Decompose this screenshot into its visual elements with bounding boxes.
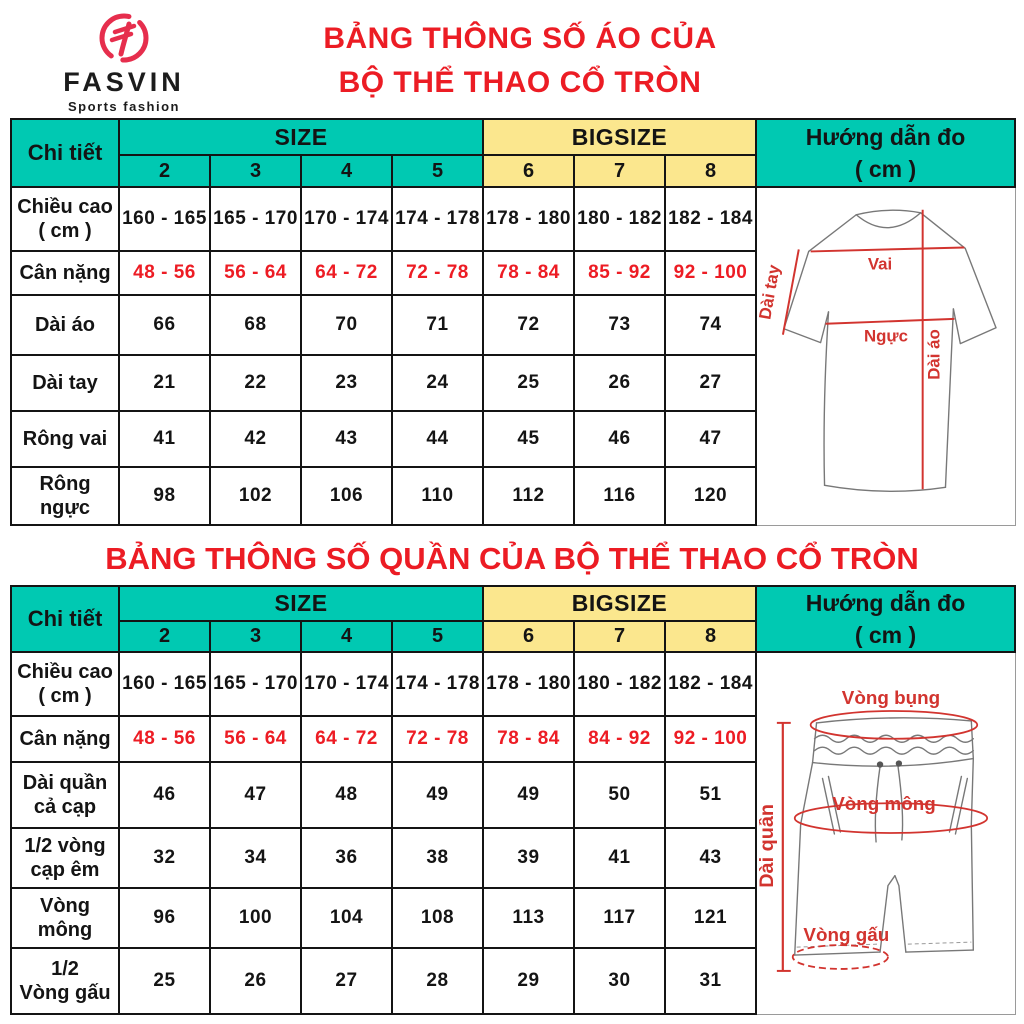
value-cell: 178 - 180 [483,187,574,251]
row-label: Dài tay [11,355,119,411]
table-row: Chiều cao ( cm ) 160 - 165 165 - 170 170… [11,187,1015,251]
value-cell: 113 [483,888,574,948]
value-cell: 92 - 100 [665,251,756,295]
value-cell: 116 [574,467,665,525]
shirt-size-table: Chi tiết SIZE BIGSIZE Hướng dẫn đo ( cm … [10,118,1016,526]
value-cell: 27 [665,355,756,411]
value-cell: 85 - 92 [574,251,665,295]
value-cell: 49 [392,762,483,828]
value-cell: 48 - 56 [119,251,210,295]
value-cell: 72 - 78 [392,251,483,295]
value-cell: 74 [665,295,756,355]
size-group-header: SIZE [119,119,483,155]
brand-logo-icon [96,10,152,66]
value-cell: 117 [574,888,665,948]
value-cell: 165 - 170 [210,652,301,716]
value-cell: 106 [301,467,392,525]
pants-size-table: Chi tiết SIZE BIGSIZE Hướng dẫn đo ( cm … [10,585,1016,1015]
value-cell: 160 - 165 [119,652,210,716]
value-cell: 49 [483,762,574,828]
shirt-measure-diagram: Vai Ngực Dài tay Dài áo [756,187,1015,525]
value-cell: 78 - 84 [483,716,574,762]
value-cell: 39 [483,828,574,888]
value-cell: 92 - 100 [665,716,756,762]
value-cell: 50 [574,762,665,828]
value-cell: 73 [574,295,665,355]
value-cell: 51 [665,762,756,828]
sleeve-length-label: Dài tay [759,263,784,321]
shirt-length-label: Dài áo [925,330,944,381]
value-cell: 32 [119,828,210,888]
bigsize-group-header: BIGSIZE [483,119,756,155]
value-cell: 44 [392,411,483,467]
value-cell: 48 [301,762,392,828]
value-cell: 43 [301,411,392,467]
row-label: Cân nặng [11,251,119,295]
brand-tagline: Sports fashion [46,99,202,114]
row-label: Rông ngực [11,467,119,525]
row-label: Chiều cao ( cm ) [11,187,119,251]
size-chart-page: FASVIN Sports fashion BẢNG THÔNG SỐ ÁO C… [0,0,1024,1024]
size-col-header: 2 [119,155,210,187]
value-cell: 46 [574,411,665,467]
value-cell: 104 [301,888,392,948]
value-cell: 180 - 182 [574,652,665,716]
bigsize-col-header: 8 [665,621,756,653]
hem-label: Vòng gấu [804,924,890,945]
value-cell: 100 [210,888,301,948]
value-cell: 70 [301,295,392,355]
value-cell: 66 [119,295,210,355]
value-cell: 45 [483,411,574,467]
row-label: 1/2 vòng cạp êm [11,828,119,888]
value-cell: 27 [301,948,392,1014]
value-cell: 108 [392,888,483,948]
value-cell: 43 [665,828,756,888]
row-label: Vòng mông [11,888,119,948]
value-cell: 170 - 174 [301,652,392,716]
bigsize-col-header: 6 [483,155,574,187]
detail-header: Chi tiết [11,586,119,652]
value-cell: 110 [392,467,483,525]
measure-guide-header: Hướng dẫn đo ( cm ) [756,119,1015,187]
value-cell: 24 [392,355,483,411]
value-cell: 174 - 178 [392,652,483,716]
value-cell: 165 - 170 [210,187,301,251]
value-cell: 84 - 92 [574,716,665,762]
value-cell: 112 [483,467,574,525]
value-cell: 28 [392,948,483,1014]
value-cell: 34 [210,828,301,888]
value-cell: 41 [574,828,665,888]
shoulder-label: Vai [868,255,892,274]
value-cell: 182 - 184 [665,652,756,716]
brand-logo: FASVIN Sports fashion [46,8,202,114]
value-cell: 29 [483,948,574,1014]
bigsize-col-header: 8 [665,155,756,187]
value-cell: 48 - 56 [119,716,210,762]
value-cell: 47 [665,411,756,467]
size-col-header: 3 [210,155,301,187]
row-label: 1/2 Vòng gấu [11,948,119,1014]
row-label: Cân nặng [11,716,119,762]
shorts-diagram-drawing: Vòng bụng Vòng mông Vòng gấu Dài quần [759,655,1012,1013]
hip-label: Vòng mông [832,793,936,814]
shirt-title-line2: BỘ THỂ THAO CỔ TRÒN [235,61,805,105]
row-label: Chiều cao ( cm ) [11,652,119,716]
value-cell: 41 [119,411,210,467]
pants-table-title: BẢNG THÔNG SỐ QUẦN CỦA BỘ THỂ THAO CỔ TR… [10,541,1014,577]
size-col-header: 5 [392,621,483,653]
value-cell: 38 [392,828,483,888]
value-cell: 23 [301,355,392,411]
value-cell: 64 - 72 [301,251,392,295]
shirt-title-line1: BẢNG THÔNG SỐ ÁO CỦA [235,17,805,61]
bigsize-col-header: 7 [574,155,665,187]
bigsize-group-header: BIGSIZE [483,586,756,621]
size-col-header: 2 [119,621,210,653]
value-cell: 178 - 180 [483,652,574,716]
waist-label: Vòng bụng [842,687,940,708]
value-cell: 64 - 72 [301,716,392,762]
value-cell: 25 [119,948,210,1014]
pants-length-label: Dài quần [759,804,778,888]
value-cell: 170 - 174 [301,187,392,251]
value-cell: 26 [574,355,665,411]
bigsize-col-header: 6 [483,621,574,653]
tshirt-diagram-drawing: Vai Ngực Dài tay Dài áo [759,188,1012,524]
value-cell: 36 [301,828,392,888]
value-cell: 46 [119,762,210,828]
value-cell: 182 - 184 [665,187,756,251]
measure-guide-header: Hướng dẫn đo ( cm ) [756,586,1015,652]
value-cell: 31 [665,948,756,1014]
value-cell: 42 [210,411,301,467]
bigsize-col-header: 7 [574,621,665,653]
size-col-header: 4 [301,155,392,187]
size-col-header: 4 [301,621,392,653]
brand-name: FASVIN [46,67,202,98]
value-cell: 30 [574,948,665,1014]
value-cell: 120 [665,467,756,525]
value-cell: 72 - 78 [392,716,483,762]
value-cell: 96 [119,888,210,948]
value-cell: 160 - 165 [119,187,210,251]
value-cell: 98 [119,467,210,525]
value-cell: 78 - 84 [483,251,574,295]
value-cell: 22 [210,355,301,411]
value-cell: 56 - 64 [210,251,301,295]
value-cell: 71 [392,295,483,355]
row-label: Dài quần cả cạp [11,762,119,828]
value-cell: 47 [210,762,301,828]
row-label: Dài áo [11,295,119,355]
value-cell: 68 [210,295,301,355]
value-cell: 72 [483,295,574,355]
value-cell: 102 [210,467,301,525]
size-group-header: SIZE [119,586,483,621]
value-cell: 26 [210,948,301,1014]
value-cell: 174 - 178 [392,187,483,251]
value-cell: 25 [483,355,574,411]
chest-label: Ngực [864,327,908,346]
value-cell: 21 [119,355,210,411]
value-cell: 56 - 64 [210,716,301,762]
row-label: Rông vai [11,411,119,467]
detail-header: Chi tiết [11,119,119,187]
pants-measure-diagram: Vòng bụng Vòng mông Vòng gấu Dài quần [756,652,1015,1014]
shirt-table-title: BẢNG THÔNG SỐ ÁO CỦA BỘ THỂ THAO CỔ TRÒN [235,17,805,105]
table-row: Chiều cao ( cm ) 160 - 165 165 - 170 170… [11,652,1015,716]
value-cell: 180 - 182 [574,187,665,251]
size-col-header: 3 [210,621,301,653]
value-cell: 121 [665,888,756,948]
size-col-header: 5 [392,155,483,187]
